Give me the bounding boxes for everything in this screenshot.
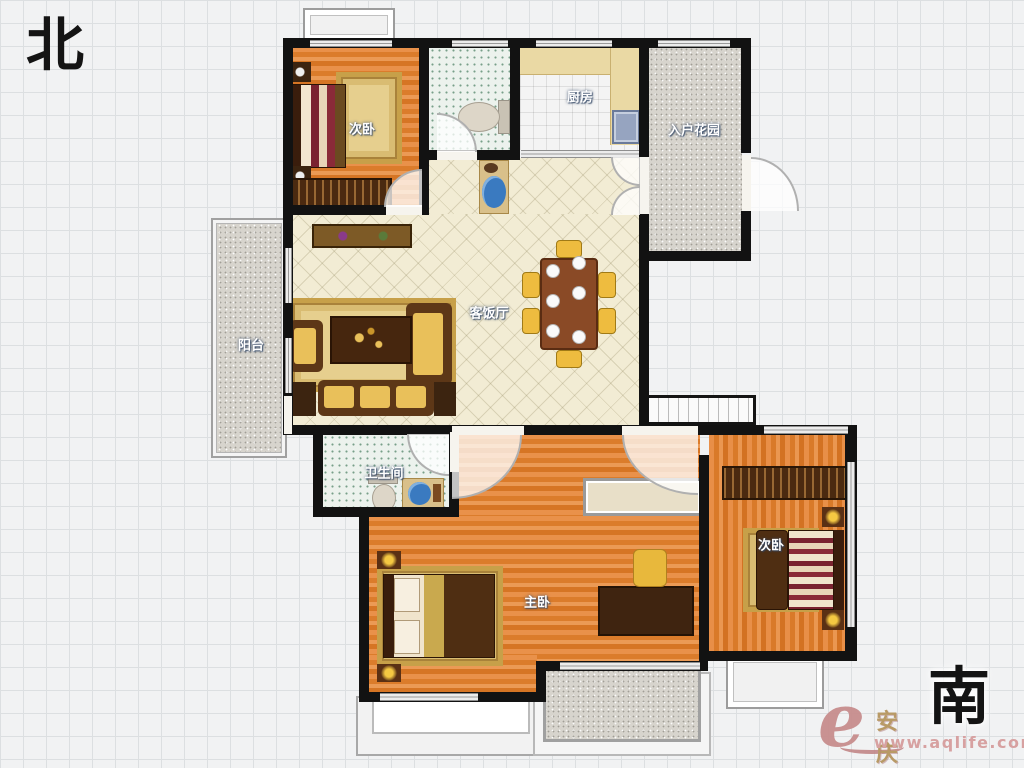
shoe-cabinet — [646, 395, 756, 425]
side-table-right — [434, 382, 456, 416]
sofa-cushion-2 — [360, 386, 390, 408]
door-opening — [622, 426, 698, 435]
plate — [546, 324, 560, 338]
room-label-entry-garden: 入户花园 — [668, 120, 720, 139]
dresser-bedroom-top — [288, 178, 392, 208]
bed-right — [788, 530, 834, 610]
pillow-master-2 — [394, 620, 420, 654]
door-opening — [437, 151, 477, 160]
lamp-master-2 — [377, 664, 401, 682]
bay-window-bedroom-right — [726, 655, 824, 709]
hall-vanity-sink — [482, 176, 506, 208]
window — [452, 40, 508, 47]
room-label-balcony: 阳台 — [238, 335, 264, 354]
window — [560, 662, 700, 670]
window — [310, 40, 392, 47]
window — [536, 40, 612, 47]
dining-chair-right-2 — [598, 308, 616, 334]
door-opening — [640, 157, 649, 214]
kitchen-sink — [612, 110, 640, 144]
dining-chair-left-1 — [522, 272, 540, 298]
wall — [639, 38, 649, 160]
room-label-kitchen: 厨房 — [567, 87, 593, 106]
bay-window-bottom — [543, 666, 701, 742]
sofa-cushion-1 — [324, 386, 354, 408]
door-opening — [452, 426, 524, 435]
compass-south: 南 — [928, 666, 990, 728]
wall — [639, 251, 751, 261]
room-label-master-bedroom: 主卧 — [524, 592, 550, 611]
plate — [572, 286, 586, 300]
lamp-right-1 — [822, 507, 844, 527]
sofa-cushion-3 — [396, 386, 426, 408]
floor-plan: 次卧 厨房 入户花园 阳台 客饭厅 卫生间 主卧 次卧 北 南 e 安庆e网生活… — [0, 0, 1024, 768]
dining-chair-bottom — [556, 350, 582, 368]
room-label-living-dining: 客饭厅 — [469, 303, 508, 322]
floor-hall — [429, 158, 641, 214]
headboard-right — [834, 530, 844, 610]
plate — [572, 330, 586, 344]
bed-top — [292, 84, 346, 168]
entry-door-opening — [742, 155, 751, 211]
door-arc — [751, 157, 799, 211]
wall — [283, 38, 293, 215]
vanity2-sink — [408, 482, 431, 505]
wall — [313, 507, 459, 517]
balcony-door-opening — [284, 396, 292, 434]
wall — [639, 261, 649, 429]
lamp-master-1 — [377, 551, 401, 569]
hall-vanity-item — [484, 163, 498, 173]
wall — [699, 651, 857, 661]
vanity2-item — [433, 484, 441, 502]
dining-chair-left-2 — [522, 308, 540, 334]
window — [285, 338, 292, 393]
window — [285, 248, 292, 303]
wall — [699, 455, 709, 661]
terrace-inner — [372, 700, 530, 734]
bay-window-top — [303, 8, 395, 42]
armchair-left-cushion — [294, 328, 316, 364]
wall — [313, 425, 323, 517]
dining-chair-right-1 — [598, 272, 616, 298]
coffee-table — [330, 316, 412, 364]
window — [764, 426, 848, 434]
window — [380, 693, 478, 701]
wall — [359, 507, 369, 702]
door-opening — [450, 432, 459, 472]
window — [847, 462, 855, 627]
armchair-right-cushion — [413, 313, 443, 375]
compass-north: 北 — [26, 16, 84, 74]
room-label-bathroom: 卫生间 — [364, 463, 403, 482]
window — [658, 40, 730, 47]
lamp-right-2 — [822, 610, 844, 630]
chair-master — [633, 549, 667, 587]
room-label-bedroom-top: 次卧 — [349, 119, 375, 138]
desk-master — [598, 586, 694, 636]
console-table — [312, 224, 412, 248]
plate — [546, 294, 560, 308]
floor-entry-garden — [649, 47, 742, 252]
wall — [510, 38, 520, 158]
wardrobe-bedroom-right — [722, 466, 848, 500]
room-label-bedroom-right: 次卧 — [758, 535, 784, 554]
plate — [572, 256, 586, 270]
plate — [546, 264, 560, 278]
wall — [741, 47, 751, 153]
watermark-site-url: www.aqlife.com — [874, 733, 1024, 752]
pillow-master-1 — [394, 578, 420, 612]
